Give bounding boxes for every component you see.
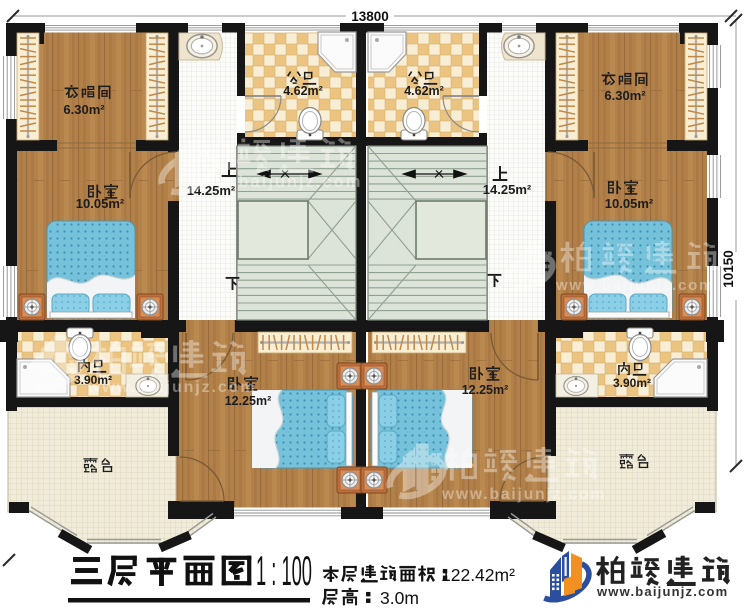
svg-text:6.30m²: 6.30m² [604, 88, 646, 103]
svg-text:1 : 100: 1 : 100 [256, 547, 312, 594]
svg-text:www.baijunjz.com: www.baijunjz.com [87, 379, 257, 396]
svg-text:10.05m²: 10.05m² [76, 196, 125, 211]
svg-text:12.25m²: 12.25m² [462, 383, 509, 397]
svg-text:12.25m²: 12.25m² [225, 394, 272, 408]
svg-text:6.30m²: 6.30m² [63, 102, 105, 117]
svg-text:4.62m²: 4.62m² [283, 84, 323, 98]
svg-text:www.baijunjz.com: www.baijunjz.com [441, 486, 606, 503]
svg-text:122.42m²: 122.42m² [441, 565, 515, 585]
svg-text:10150: 10150 [721, 250, 736, 288]
svg-text:10.05m²: 10.05m² [605, 196, 654, 211]
svg-text:3.0m: 3.0m [380, 588, 419, 608]
svg-text:3.90m²: 3.90m² [613, 376, 651, 390]
svg-text:www.baijunjz.com: www.baijunjz.com [187, 173, 362, 191]
svg-text:www.baijunjz.com: www.baijunjz.com [555, 277, 714, 294]
svg-text:13800: 13800 [351, 9, 389, 24]
svg-text:14.25m²: 14.25m² [483, 182, 532, 197]
svg-text:4.62m²: 4.62m² [404, 84, 444, 98]
svg-text:www.baijunjz.com: www.baijunjz.com [596, 584, 728, 599]
